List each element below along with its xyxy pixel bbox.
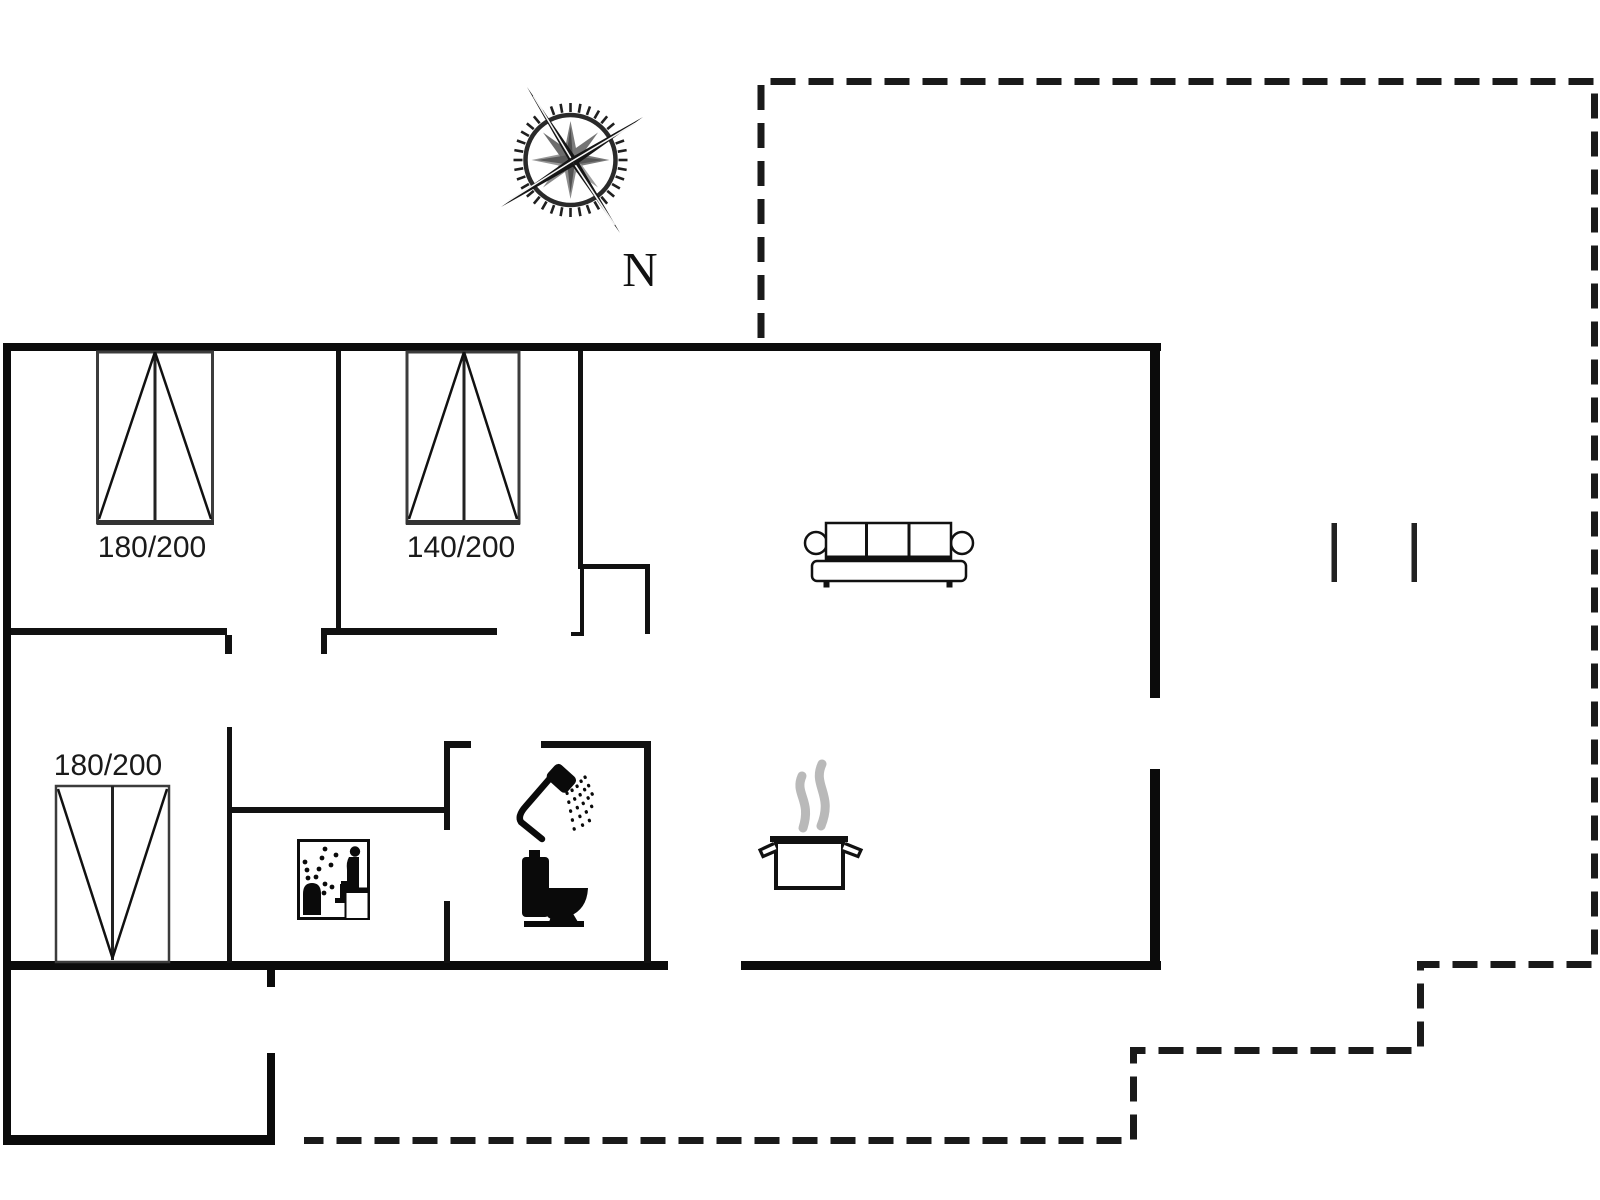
svg-text:180/200: 180/200 — [98, 531, 206, 564]
svg-text:180/200: 180/200 — [54, 749, 162, 782]
svg-text:140/200: 140/200 — [407, 531, 515, 564]
svg-text:N: N — [622, 242, 657, 297]
